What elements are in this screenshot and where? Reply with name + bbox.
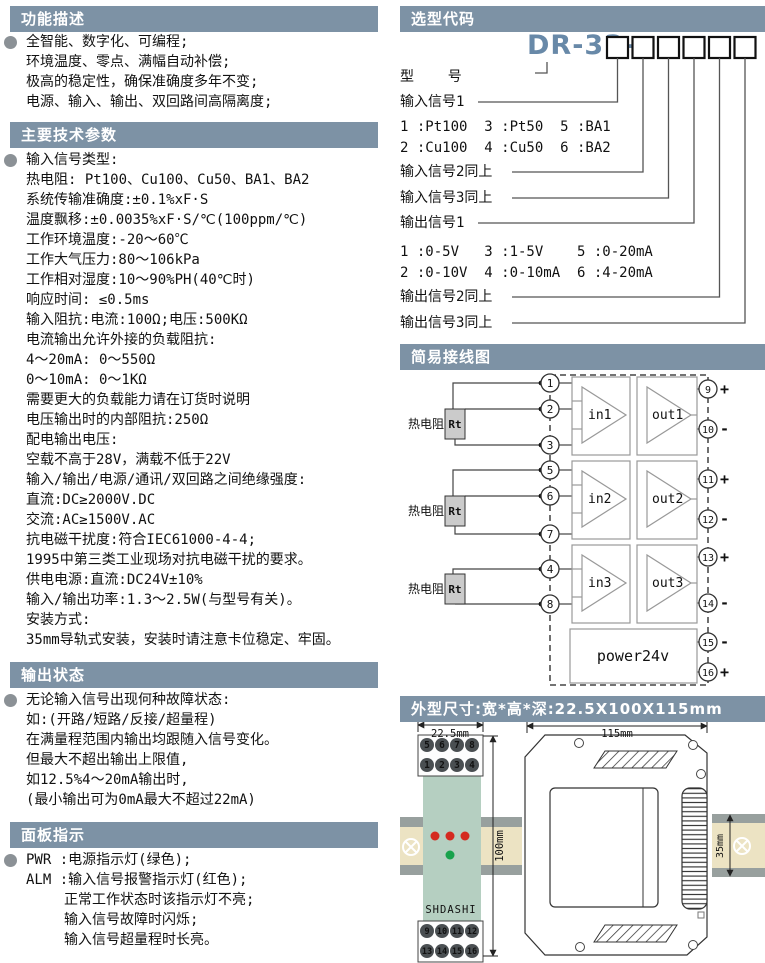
- selection-row: 2 :Cu100 4 :Cu50 6 :BA2: [400, 138, 765, 158]
- rt-label: Rt: [448, 583, 461, 596]
- bullet-icon: [4, 154, 17, 167]
- text-line: 在满量程范围内输出均跟随入信号变化。: [0, 730, 390, 750]
- clamp-fins: [682, 788, 707, 909]
- selection-row: 型 号: [400, 67, 765, 87]
- text-line: 系统传输准确度:±0.1%xF·S: [0, 190, 390, 210]
- rtd-label: 热电阻: [408, 582, 444, 596]
- side-din-rail: 35mm: [712, 814, 765, 877]
- polarity-sign: -: [720, 420, 729, 438]
- section-header-params: 主要技术参数: [10, 122, 378, 148]
- text-line: 热电阻: Pt100、Cu100、Cu50、BA1、BA2: [0, 170, 390, 190]
- text-line: 0～10mA: 0～1KΩ: [0, 370, 390, 390]
- side-width-dim: 115mm: [601, 728, 633, 740]
- front-terminal: 15: [452, 947, 462, 957]
- label-window: [550, 788, 658, 907]
- pwr-led: [431, 832, 440, 841]
- section-header-selection: 选型代码: [400, 6, 765, 32]
- front-terminal: 13: [422, 947, 432, 957]
- front-terminal: 6: [439, 740, 445, 751]
- text-line: 输入信号故障时闪烁;: [0, 910, 390, 930]
- terminal-number: 13: [702, 553, 714, 564]
- section-header-wiring: 简易接线图: [400, 344, 765, 370]
- text-line: 空载不高于28V，满载不低于22V: [0, 450, 390, 470]
- right-terminals: 9 10 11 12 13 14 15 16 + - + - + - - +: [699, 380, 729, 681]
- polarity-sign: -: [720, 633, 729, 651]
- section-header-dimensions: 外型尺寸:宽*高*深:22.5X100X115mm: [400, 696, 765, 722]
- front-terminal: 8: [469, 740, 475, 751]
- text-line: 响应时间: ≤0.5ms: [0, 290, 390, 310]
- text-line: 输入阻抗:电流:100Ω;电压:500KΩ: [0, 310, 390, 330]
- text-line: 输入/输出/电源/通讯/双回路之间绝缘强度:: [0, 470, 390, 490]
- alm-led: [461, 832, 470, 841]
- selection-row: 1 :Pt100 3 :Pt50 5 :BA1: [400, 117, 765, 137]
- front-terminal: 3: [454, 760, 460, 771]
- rtd-label: 热电阻: [408, 417, 444, 431]
- rt-label: Rt: [448, 418, 461, 431]
- text-line: 安装方式:: [0, 610, 390, 630]
- text-line: 35mm导轨式安装，安装时请注意卡位稳定、牢固。: [0, 630, 390, 650]
- front-view-module: SHDASHI 5 6 7 8 1 2 3 4 9: [418, 735, 483, 962]
- text-line: 4～20mA: 0～550Ω: [0, 350, 390, 370]
- terminal-number: 1: [547, 377, 554, 390]
- amp-out-label: out2: [652, 492, 683, 507]
- text-line: 输入/输出功率:1.3～2.5W(与型号有关)。: [0, 590, 390, 610]
- front-width-dim: 22.5mm: [431, 728, 469, 740]
- text-line: 抗电磁干扰度:符合IEC61000-4-4;: [0, 530, 390, 550]
- front-terminal: 2: [439, 760, 445, 771]
- amp-in-label: in2: [588, 492, 611, 507]
- text-line: 全智能、数字化、可编程;: [0, 32, 390, 52]
- amp-in-label: in3: [588, 576, 611, 591]
- rtd-sensors: Rt Rt Rt 热电阻 热电阻 热电阻: [408, 409, 465, 604]
- terminal-number: 6: [547, 490, 554, 503]
- text-line: 如12.5%4～20mA输出时,: [0, 770, 390, 790]
- polarity-sign: +: [720, 380, 729, 398]
- bullet-icon: [4, 854, 17, 867]
- bullet-icon: [4, 36, 17, 49]
- text-line: 输入信号超量程时长亮。: [0, 930, 390, 950]
- brand-label: SHDASHI: [425, 904, 476, 916]
- front-terminal: 10: [437, 927, 447, 937]
- wiring-diagram: Rt Rt Rt 热电阻 热电阻 热电阻 in1 out1 in2 out2 i…: [400, 371, 765, 695]
- green-led: [446, 851, 455, 860]
- front-terminal: 1: [424, 760, 430, 771]
- selection-row: 输出信号2同上: [400, 287, 765, 307]
- text-line: ALM :输入信号报警指示灯(红色);: [0, 870, 390, 890]
- front-terminal: 4: [469, 760, 475, 771]
- left-terminals: 1 2 3 5 6 7 4 8: [541, 374, 559, 613]
- text-line: 供电电源:直流:DC24V±10%: [0, 570, 390, 590]
- polarity-sign: -: [720, 510, 729, 528]
- rtd-label: 热电阻: [408, 504, 444, 518]
- terminal-number: 15: [702, 638, 714, 649]
- section-header-panel: 面板指示: [10, 822, 378, 848]
- terminal-number: 12: [702, 515, 714, 526]
- bullet-icon: [4, 694, 17, 707]
- front-terminal: 12: [467, 927, 477, 937]
- front-terminal: 16: [467, 947, 477, 957]
- alm-led: [446, 832, 455, 841]
- front-terminal: 11: [452, 927, 462, 937]
- terminal-number: 9: [705, 385, 711, 396]
- text-line: 工作环境温度:-20～60℃: [0, 230, 390, 250]
- vent-hatch-bottom: [594, 925, 677, 942]
- code-boxes: [607, 37, 756, 58]
- text-line: 电源、输入、输出、双回路间高隔离度;: [0, 92, 390, 112]
- text-line: 温度飘移:±0.0035%xF·S/℃(100ppm/℃): [0, 210, 390, 230]
- selection-row: 2 :0-10V 4 :0-10mA 6 :4-20mA: [400, 263, 765, 283]
- text-line: 但最大不超出输出上限值,: [0, 750, 390, 770]
- power-label: power24v: [597, 647, 669, 665]
- terminal-number: 16: [702, 668, 714, 679]
- front-terminal: 7: [454, 740, 460, 751]
- front-terminal: 9: [424, 927, 429, 937]
- terminal-number: 8: [547, 598, 554, 611]
- rail-height-dim: 35mm: [715, 834, 726, 858]
- text-line: 输入信号类型:: [0, 150, 390, 170]
- front-terminal: 5: [424, 740, 430, 751]
- selection-row: 输入信号2同上: [400, 162, 765, 182]
- dimension-drawing: SHDASHI 5 6 7 8 1 2 3 4 9: [400, 722, 765, 963]
- section-header-output-state: 输出状态: [10, 662, 378, 688]
- text-line: 如:(开路/短路/反接/超量程): [0, 710, 390, 730]
- selection-row: 1 :0-5V 3 :1-5V 5 :0-20mA: [400, 242, 765, 262]
- selection-row: 输出信号3同上: [400, 313, 765, 333]
- text-line: 环境温度、零点、满幅自动补偿;: [0, 52, 390, 72]
- amp-out-label: out3: [652, 576, 683, 591]
- amp-out-label: out1: [652, 408, 683, 423]
- text-line: 电流输出允许外接的负载阻抗:: [0, 330, 390, 350]
- text-line: 1995中第三类工业现场对抗电磁干扰的要求。: [0, 550, 390, 570]
- polarity-sign: +: [720, 470, 729, 488]
- front-height-dim: 100mm: [494, 830, 506, 862]
- terminal-number: 14: [702, 599, 714, 610]
- text-line: (最小输出可为0mA最大不超过22mA): [0, 790, 390, 810]
- module-body: [423, 775, 481, 921]
- text-line: PWR :电源指示灯(绿色);: [0, 850, 390, 870]
- datasheet-page: 功能描述 全智能、数字化、可编程; 环境温度、零点、满幅自动补偿; 极高的稳定性…: [0, 0, 765, 963]
- terminal-number: 7: [547, 528, 554, 541]
- terminal-number: 11: [702, 475, 714, 486]
- text-line: 直流:DC≥2000V.DC: [0, 490, 390, 510]
- polarity-sign: +: [720, 548, 729, 566]
- text-line: 配电输出电压:: [0, 430, 390, 450]
- text-line: 需要更大的负载能力请在订货时说明: [0, 390, 390, 410]
- selection-row: 输出信号1: [400, 213, 765, 233]
- polarity-sign: -: [720, 594, 729, 612]
- side-view: [525, 735, 707, 955]
- section-header-function: 功能描述: [10, 6, 378, 32]
- vent-hatch-top: [594, 751, 677, 768]
- rt-label: Rt: [448, 505, 461, 518]
- polarity-sign: +: [720, 663, 729, 681]
- selection-row: 输入信号1: [400, 92, 765, 112]
- text-line: 交流:AC≥1500V.AC: [0, 510, 390, 530]
- amp-in-label: in1: [588, 408, 611, 423]
- selection-row: 输入信号3同上: [400, 188, 765, 208]
- terminal-number: 10: [702, 425, 714, 436]
- text-line: 工作大气压力:80～106kPa: [0, 250, 390, 270]
- terminal-number: 2: [547, 403, 554, 416]
- terminal-number: 3: [547, 439, 554, 452]
- text-line: 工作相对湿度:10～90%PH(40℃时): [0, 270, 390, 290]
- text-line: 正常工作状态时该指示灯不亮;: [0, 890, 390, 910]
- text-line: 电压输出时的内部阻抗:250Ω: [0, 410, 390, 430]
- text-line: 无论输入信号出现何种故障状态:: [0, 690, 390, 710]
- text-line: 极高的稳定性，确保准确度多年不变;: [0, 72, 390, 92]
- terminal-number: 4: [547, 563, 554, 576]
- front-terminal: 14: [437, 947, 447, 957]
- terminal-number: 5: [547, 464, 554, 477]
